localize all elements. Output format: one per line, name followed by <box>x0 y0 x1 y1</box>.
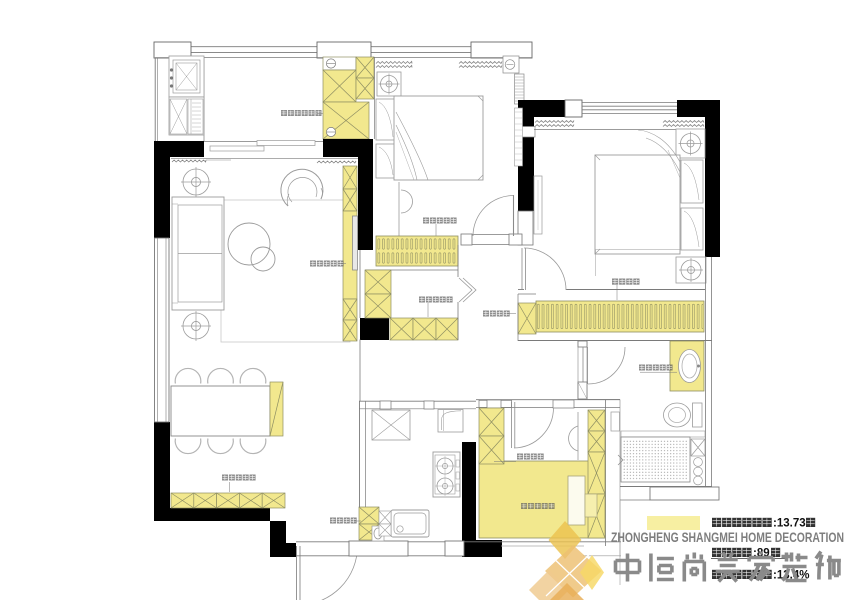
svg-text::13.73: :13.73 <box>773 518 806 530</box>
svg-text:ZHONGHENG SHANGMEI HOME DECORA: ZHONGHENG SHANGMEI HOME DECORATION <box>611 529 844 545</box>
